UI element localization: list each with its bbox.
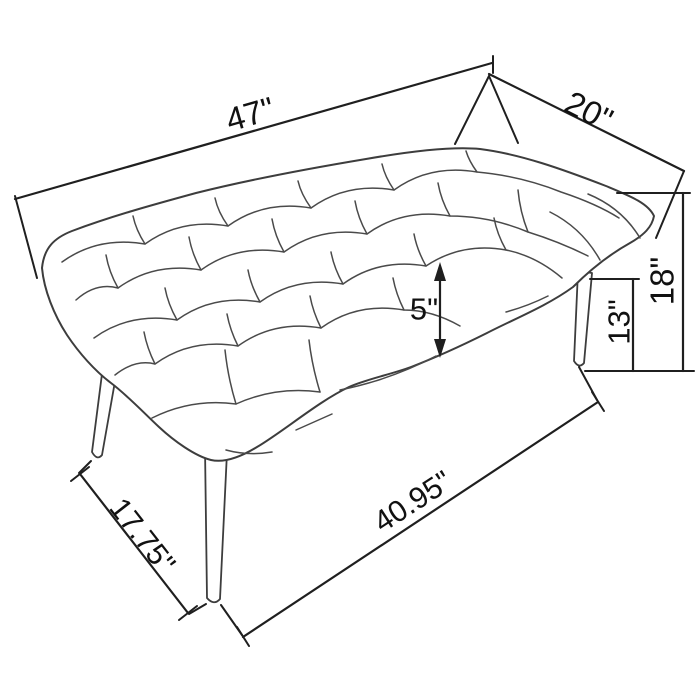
dim-label-cushion-thickness: 5"	[410, 292, 438, 327]
dim-label-overall-depth: 20"	[559, 84, 619, 139]
bench-seat-outline	[42, 148, 654, 461]
dim-ext-4095-front-leg	[221, 605, 242, 635]
dim-tick-1775-end	[179, 606, 197, 620]
dim-label-footprint-length: 40.95"	[368, 465, 458, 539]
dim-label-leg-height: 13"	[602, 299, 637, 345]
dim-ext-20-right	[656, 171, 684, 238]
bench-leg-front-right	[205, 448, 227, 602]
diagram-canvas: 47" 20" 18" 13" 5"	[0, 0, 700, 700]
dim-label-overall-height: 18"	[644, 257, 681, 305]
dim-footprint-depth: 17.75"	[71, 461, 206, 620]
dimension-diagram: 47" 20" 18" 13" 5"	[0, 0, 700, 700]
dim-ext-20-left-a	[455, 76, 489, 144]
dim-tick-1775-start	[71, 467, 89, 481]
dim-label-footprint-depth: 17.75"	[103, 492, 182, 580]
dim-label-overall-length: 47"	[222, 90, 279, 139]
dim-leg-height: 13"	[590, 279, 639, 371]
dim-line-4095	[243, 402, 598, 637]
dim-ext-47-left	[15, 196, 37, 278]
bench-leg-rear-right	[574, 271, 592, 366]
